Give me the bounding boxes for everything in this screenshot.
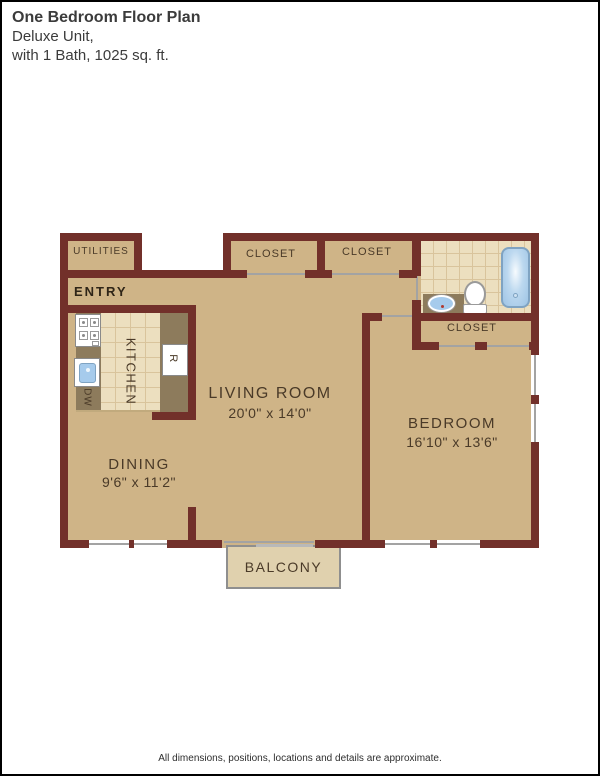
- wall: [417, 233, 539, 241]
- dining-label: DINING: [69, 456, 209, 473]
- window: [531, 404, 539, 442]
- wall: [68, 305, 196, 313]
- balcony-sliding-door-panel: [256, 544, 313, 547]
- wall: [415, 342, 439, 350]
- window: [531, 355, 539, 395]
- wall: [531, 442, 539, 548]
- bedroom-closet-door-left: [439, 345, 475, 347]
- floor-plan: BALCONY: [2, 2, 600, 776]
- wall: [362, 313, 370, 548]
- stove-burner: [90, 318, 99, 327]
- stove-burner: [90, 331, 99, 340]
- wall: [60, 233, 142, 241]
- utilities-label: UTILITIES: [61, 246, 141, 257]
- wall: [60, 270, 230, 278]
- balcony: BALCONY: [226, 545, 341, 589]
- wall: [305, 270, 332, 278]
- dining-dims: 9'6" x 11'2": [69, 474, 209, 490]
- dishwasher-label: DW: [82, 383, 93, 413]
- bathtub: [501, 247, 530, 308]
- refrigerator-label: R: [167, 349, 179, 369]
- exterior-notch: [142, 230, 223, 270]
- window: [89, 540, 129, 548]
- bedroom-closet-label: CLOSET: [430, 322, 514, 334]
- stove-burner: [79, 331, 88, 340]
- window: [437, 540, 480, 548]
- closet2-door: [332, 273, 399, 275]
- wall: [167, 540, 222, 548]
- stove-burner: [79, 318, 88, 327]
- bedroom-door: [382, 315, 415, 317]
- disclaimer-text: All dimensions, positions, locations and…: [2, 753, 598, 764]
- bathroom-sink: [428, 295, 455, 312]
- wall: [60, 540, 89, 548]
- bedroom-label: BEDROOM: [372, 415, 532, 432]
- wall: [430, 540, 437, 548]
- wall: [223, 270, 247, 278]
- bedroom-closet-door-right: [487, 345, 529, 347]
- closet1-door: [247, 273, 305, 275]
- wall: [412, 233, 421, 276]
- stove: [75, 314, 101, 347]
- window: [134, 540, 167, 548]
- bathroom-door: [416, 276, 418, 300]
- entry-label: ENTRY: [74, 284, 128, 299]
- balcony-sliding-door: [224, 541, 314, 543]
- wall: [475, 342, 487, 350]
- closet1-label: CLOSET: [229, 248, 313, 260]
- bedroom-dims: 16'10" x 13'6": [372, 434, 532, 450]
- wall: [480, 540, 539, 548]
- stove-panel: [92, 341, 99, 346]
- living-room-label: LIVING ROOM: [170, 385, 370, 403]
- wall: [531, 233, 539, 355]
- floor-plan-page: One Bedroom Floor Plan Deluxe Unit, with…: [0, 0, 600, 776]
- balcony-label: BALCONY: [245, 559, 322, 575]
- wall: [60, 270, 68, 548]
- wall: [415, 313, 539, 321]
- closet2-label: CLOSET: [325, 246, 409, 258]
- kitchen-label: KITCHEN: [124, 327, 139, 417]
- kitchen-sink-basin: [79, 363, 96, 383]
- wall: [315, 540, 385, 548]
- window: [385, 540, 430, 548]
- wall: [531, 395, 539, 404]
- wall: [529, 342, 539, 350]
- living-room-dims: 20'0" x 14'0": [170, 405, 370, 421]
